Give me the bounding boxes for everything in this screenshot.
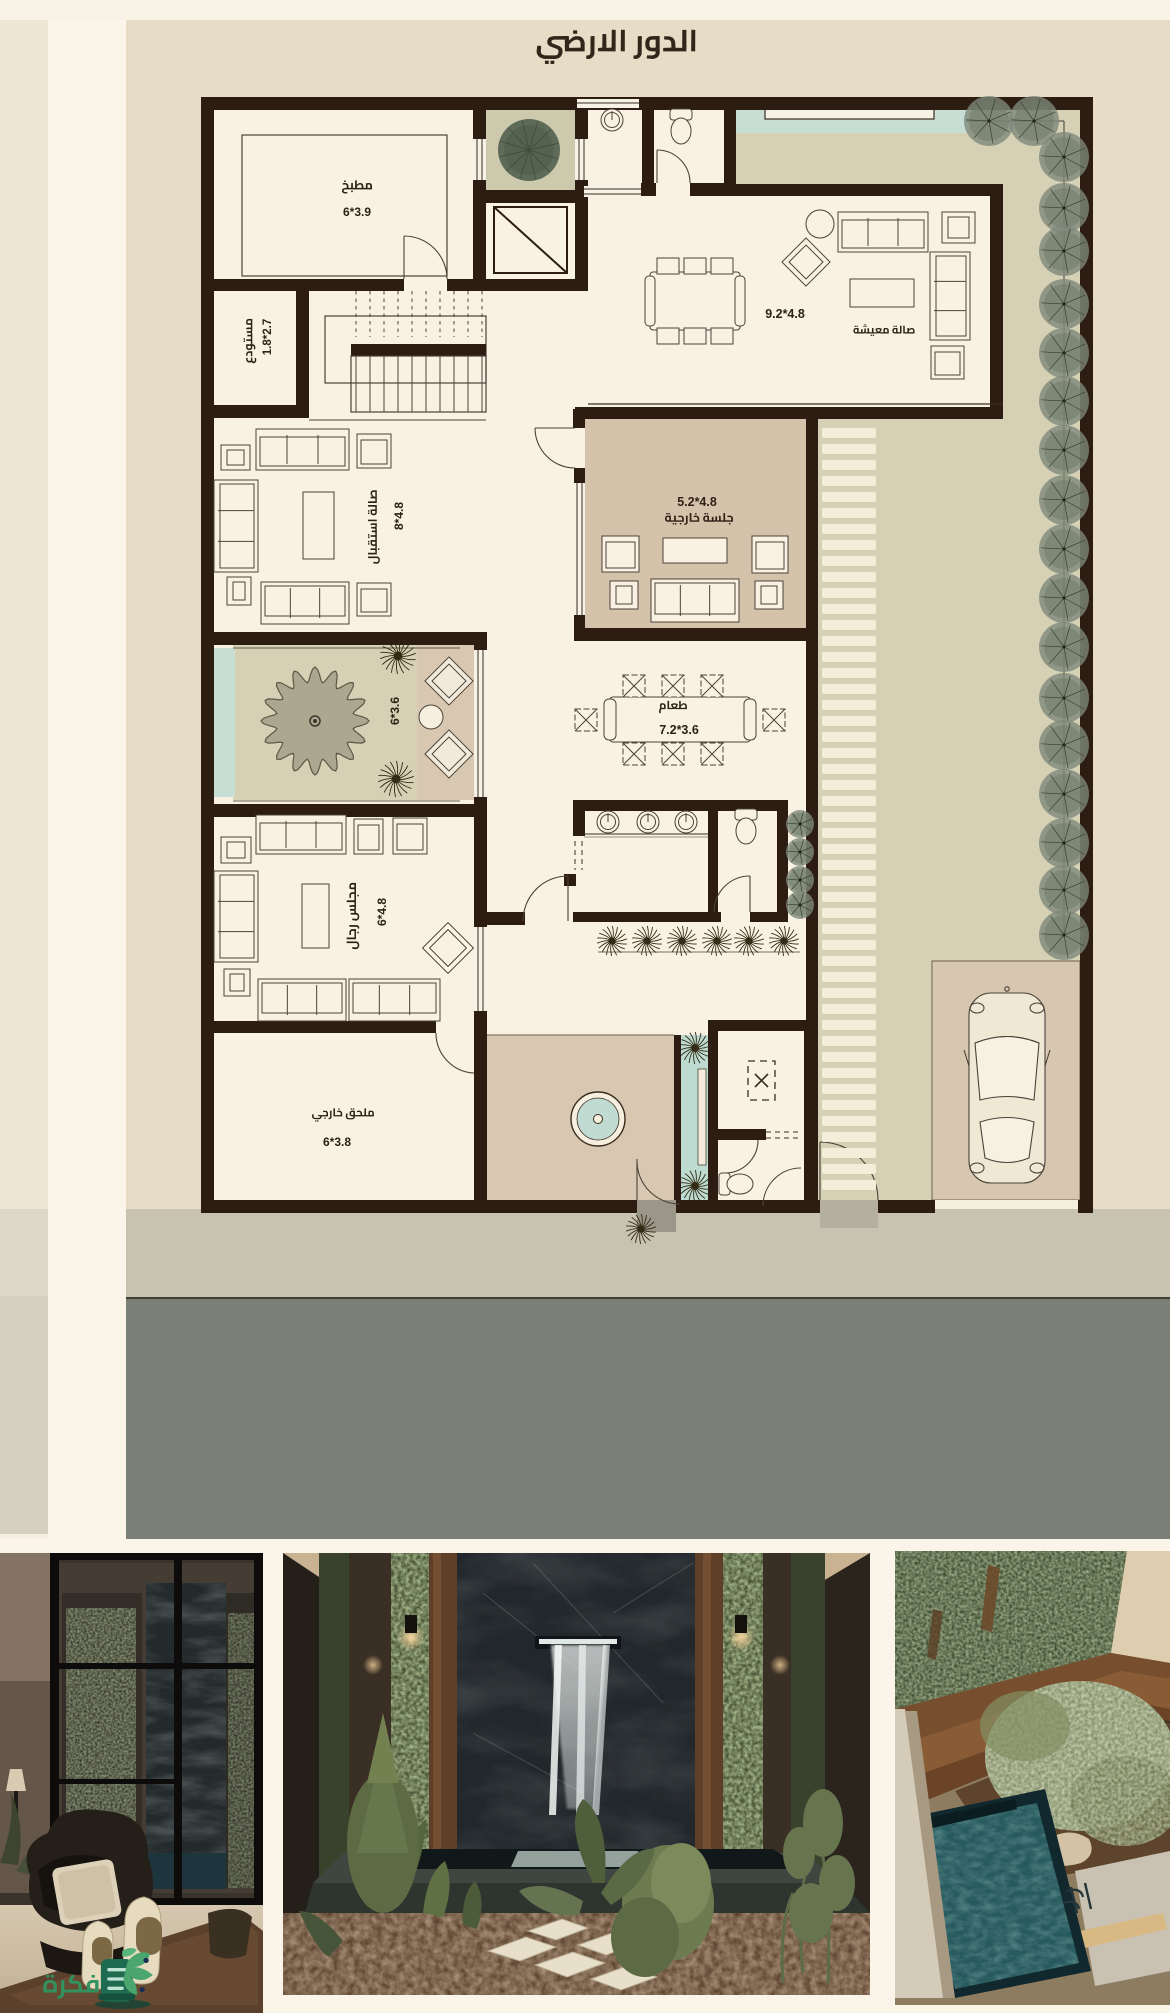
svg-text:8*4.8: 8*4.8 (392, 502, 406, 530)
svg-text:6*4.8: 6*4.8 (375, 898, 389, 926)
svg-text:7.2*3.6: 7.2*3.6 (659, 723, 699, 737)
svg-text:6*3.8: 6*3.8 (323, 1135, 351, 1149)
svg-text:5.2*4.8: 5.2*4.8 (677, 495, 717, 509)
svg-text:1.8*2.7: 1.8*2.7 (262, 319, 274, 355)
svg-text:6*3.9: 6*3.9 (343, 205, 371, 219)
svg-text:9.2*4.8: 9.2*4.8 (765, 307, 805, 321)
svg-text:6*3.6: 6*3.6 (388, 697, 402, 725)
